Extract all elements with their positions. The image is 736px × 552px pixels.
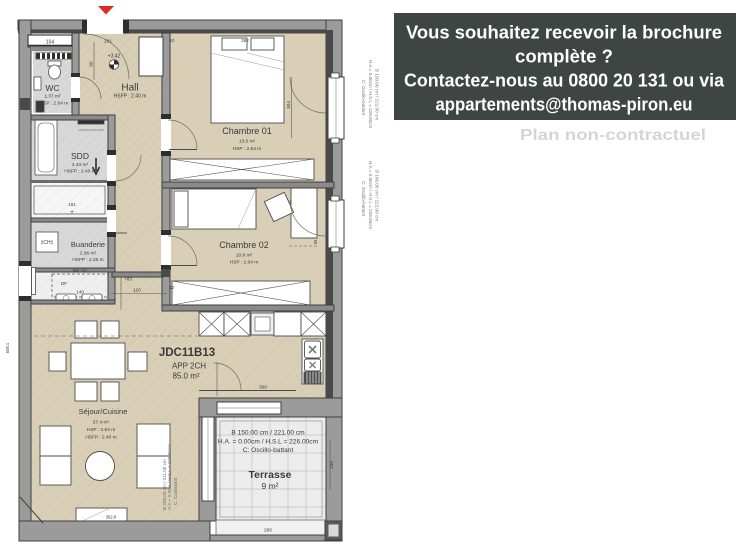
svg-text:DF: DF xyxy=(61,281,67,286)
svg-text:Plan non-contractuel: Plan non-contractuel xyxy=(520,127,706,144)
svg-text:110: 110 xyxy=(133,288,141,294)
svg-text:Chambre 02: Chambre 02 xyxy=(219,240,269,250)
svg-text:2.96 m²: 2.96 m² xyxy=(80,251,97,257)
svg-text:90: 90 xyxy=(313,239,318,244)
svg-text:B 150.00 cm / 221.00 cm: B 150.00 cm / 221.00 cm xyxy=(375,69,380,120)
svg-text:HSFP : 2.40 m: HSFP : 2.40 m xyxy=(114,94,147,100)
svg-text:13.0 m²: 13.0 m² xyxy=(239,139,256,145)
svg-text:HSP : 2.64 m: HSP : 2.64 m xyxy=(40,101,68,107)
svg-text:+83: +83 xyxy=(124,277,132,282)
svg-text:230: 230 xyxy=(329,461,335,469)
svg-text:C. Coulissant: C. Coulissant xyxy=(173,477,178,505)
svg-text:Terrasse: Terrasse xyxy=(248,469,291,481)
svg-text:88: 88 xyxy=(89,61,94,67)
svg-text:SDD: SDD xyxy=(71,151,89,161)
svg-text:300: 300 xyxy=(259,385,267,391)
svg-text:Contactez-nous au 0800 20 131: Contactez-nous au 0800 20 131 ou via xyxy=(404,70,725,91)
svg-text:104: 104 xyxy=(46,40,55,46)
svg-text:Séjour/Cuisine: Séjour/Cuisine xyxy=(79,407,128,416)
svg-text:Vous souhaitez recevoir la bro: Vous souhaitez recevoir la brochure xyxy=(406,22,722,43)
svg-text:HSP : 2.64 m: HSP : 2.64 m xyxy=(87,427,115,433)
svg-text:H.A = 0.00cm / H.S.L = 226.00c: H.A = 0.00cm / H.S.L = 226.00cm xyxy=(368,161,373,229)
svg-text:161: 161 xyxy=(68,202,76,207)
svg-text:B 150.00 cm / 221.00 cm: B 150.00 cm / 221.00 cm xyxy=(231,430,305,437)
svg-text:HSFP : 2.26 m: HSFP : 2.26 m xyxy=(72,257,103,263)
svg-text:C: Oscillo-battant: C: Oscillo-battant xyxy=(361,181,366,217)
svg-text:‡CH‡: ‡CH‡ xyxy=(41,240,54,246)
svg-text:Hall: Hall xyxy=(121,83,138,94)
svg-text:508.1: 508.1 xyxy=(5,342,10,353)
svg-text:H.A. = 0.00cm / H.S.L = 226.00: H.A. = 0.00cm / H.S.L = 226.00cm xyxy=(218,439,319,446)
svg-text:B 100.00 cm / 221.00 cm: B 100.00 cm / 221.00 cm xyxy=(375,170,380,221)
svg-text:C: Oscillo-battant: C: Oscillo-battant xyxy=(361,80,366,116)
svg-text:WC: WC xyxy=(45,83,59,93)
svg-text:10: 10 xyxy=(170,285,175,290)
svg-text:+3.42: +3.42 xyxy=(108,54,121,60)
svg-text:1.37 m²: 1.37 m² xyxy=(44,94,61,100)
svg-text:85.0 m²: 85.0 m² xyxy=(172,372,199,381)
svg-text:+: + xyxy=(70,210,74,216)
svg-text:9 m²: 9 m² xyxy=(262,481,279,491)
svg-text:H.A = 0.00cm / H.S.L = 226.00c: H.A = 0.00cm / H.S.L = 226.00cm xyxy=(368,60,373,128)
svg-text:APP 2CH: APP 2CH xyxy=(172,362,206,371)
svg-text:C: Oscillo-battant: C: Oscillo-battant xyxy=(243,447,294,454)
svg-text:Buanderie: Buanderie xyxy=(71,240,105,249)
svg-text:304: 304 xyxy=(286,101,292,109)
svg-text:ME SU: ME SU xyxy=(73,268,88,273)
svg-text:HSFP : 2.40 m: HSFP : 2.40 m xyxy=(85,435,116,441)
svg-text:4.34 m²: 4.34 m² xyxy=(72,162,89,168)
svg-text:10: 10 xyxy=(170,38,175,43)
svg-text:260: 260 xyxy=(264,528,272,534)
svg-text:H.A + 0.00m / H.S.L + 226.00cm: H.A + 0.00m / H.S.L + 226.00cm xyxy=(167,444,172,510)
svg-text:140: 140 xyxy=(76,290,84,295)
svg-text:27.4 m²: 27.4 m² xyxy=(93,420,110,426)
svg-text:201: 201 xyxy=(104,39,112,44)
svg-text:appartements@thomas-piron.eu: appartements@thomas-piron.eu xyxy=(436,94,693,115)
svg-text:362: 362 xyxy=(241,38,249,43)
svg-text:HSP : 2.64 m: HSP : 2.64 m xyxy=(230,260,258,266)
svg-text:10.8 m²: 10.8 m² xyxy=(236,253,253,259)
svg-text:HSFP : 2.40 m: HSFP : 2.40 m xyxy=(64,169,95,175)
svg-text:HSP : 2.64 m: HSP : 2.64 m xyxy=(233,146,261,152)
svg-text:Chambre 01: Chambre 01 xyxy=(222,126,272,136)
svg-text:JDC11B13: JDC11B13 xyxy=(159,347,215,359)
svg-text:complète ?: complète ? xyxy=(515,46,613,67)
svg-text:382.8: 382.8 xyxy=(106,515,117,520)
